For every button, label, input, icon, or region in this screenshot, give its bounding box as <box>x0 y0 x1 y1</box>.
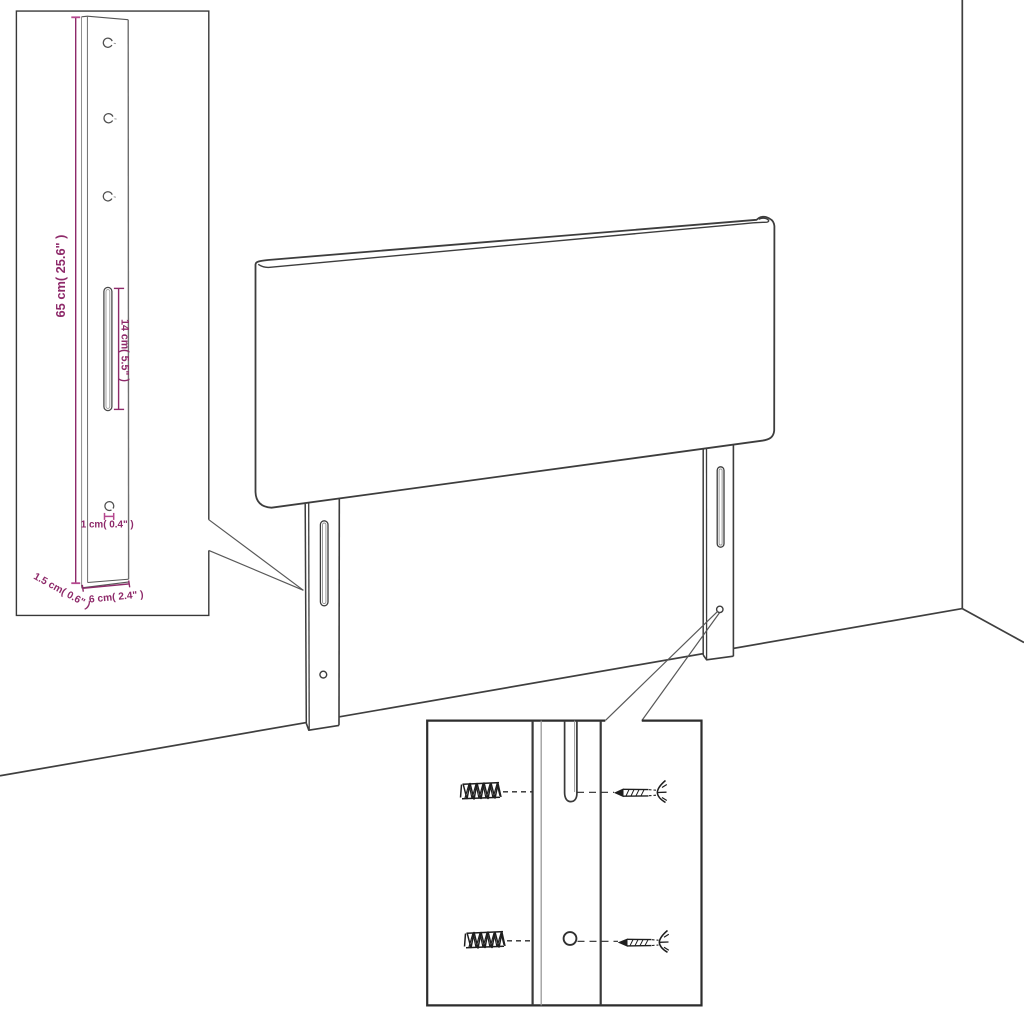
svg-text:14 cm( 5.5" ): 14 cm( 5.5" ) <box>118 319 130 382</box>
svg-text:1 cm( 0.4" ): 1 cm( 0.4" ) <box>81 520 134 531</box>
svg-text:65 cm( 25.6" ): 65 cm( 25.6" ) <box>53 235 68 318</box>
